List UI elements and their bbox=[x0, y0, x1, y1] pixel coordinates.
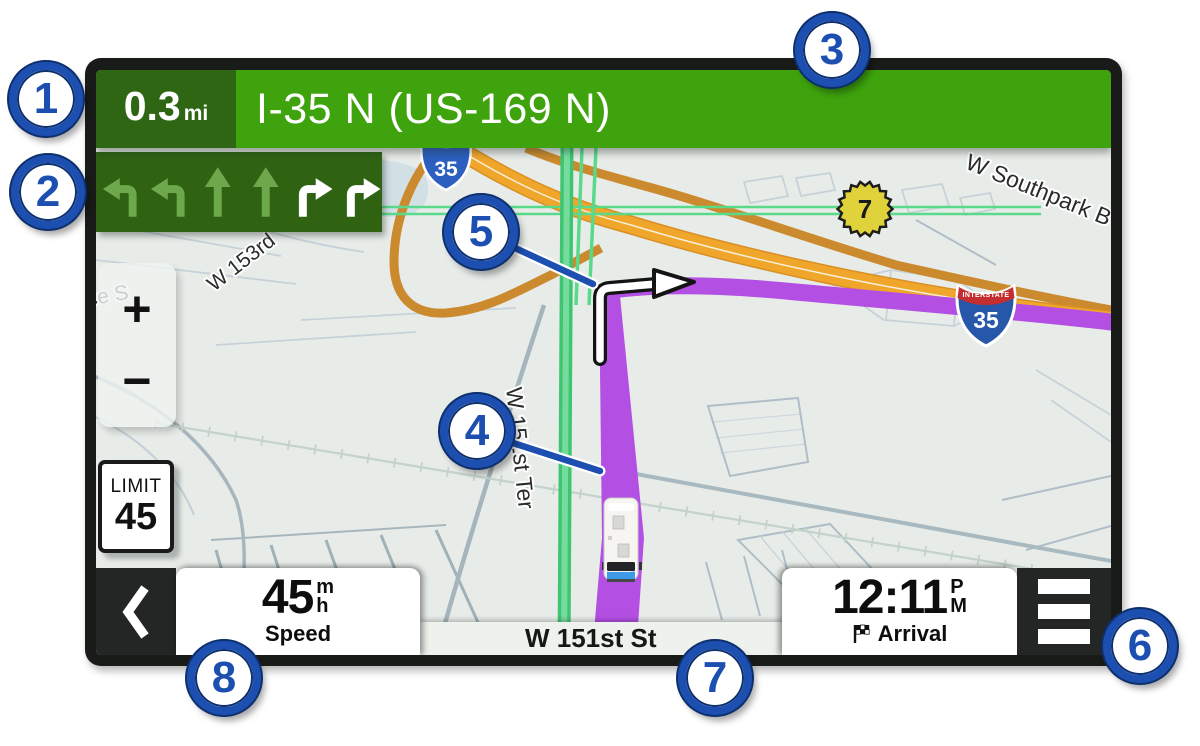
navigation-instruction-bar[interactable]: 0.3 mi I-35 N (US-169 N) bbox=[96, 70, 1111, 148]
speed-limit-value: 45 bbox=[115, 498, 157, 538]
callout-1: 1 bbox=[9, 62, 83, 136]
callout-7: 7 bbox=[678, 641, 752, 715]
speed-limit-label: LIMIT bbox=[110, 476, 161, 498]
lane-arrow-turn-left bbox=[101, 163, 145, 221]
zoom-in-button[interactable]: + bbox=[107, 284, 167, 334]
callout-8: 8 bbox=[187, 641, 261, 715]
back-chevron-icon bbox=[121, 582, 151, 642]
svg-text:INTERSTATE: INTERSTATE bbox=[963, 292, 1010, 299]
interstate-35-shield: INTERSTATE 35 bbox=[957, 286, 1015, 346]
map-block-outlines bbox=[706, 220, 1111, 620]
callout-3: 3 bbox=[795, 13, 869, 87]
documentation-page: 35 7 INTERSTATE 35 W 153rd ce S bbox=[0, 0, 1200, 746]
gps-device-frame: 35 7 INTERSTATE 35 W 153rd ce S bbox=[85, 58, 1122, 666]
arrival-ampm: P M bbox=[950, 578, 967, 615]
lane-arrow-straight bbox=[196, 163, 240, 221]
callout-2: 2 bbox=[11, 155, 85, 229]
lane-arrow-straight bbox=[244, 163, 288, 221]
speed-units: m h bbox=[316, 578, 334, 615]
lane-arrow-turn-right-active bbox=[291, 163, 335, 221]
speed-limit-sign: LIMIT 45 bbox=[98, 460, 174, 553]
street-label-w153rd: W 153rd bbox=[203, 229, 280, 296]
svg-text:35: 35 bbox=[434, 158, 458, 181]
arrival-data-field[interactable]: 12:11 P M bbox=[782, 568, 1017, 655]
zoom-out-button[interactable]: − bbox=[107, 356, 167, 406]
lane-arrow-turn-right-active bbox=[339, 163, 383, 221]
zoom-control-panel: + − bbox=[98, 263, 176, 427]
distance-unit: mi bbox=[184, 102, 209, 126]
arrival-time: 12:11 bbox=[832, 576, 947, 620]
callout-5: 5 bbox=[444, 195, 518, 269]
svg-text:35: 35 bbox=[973, 307, 999, 333]
next-turn-street-name: I-35 N (US-169 N) bbox=[236, 70, 1111, 148]
lane-arrow-turn-left bbox=[149, 163, 193, 221]
hamburger-icon bbox=[1038, 579, 1090, 594]
vehicle-marker bbox=[602, 498, 642, 582]
speed-value: 45 bbox=[262, 576, 313, 620]
distance-to-turn: 0.3 mi bbox=[96, 70, 236, 148]
arrival-readout: 12:11 P M bbox=[832, 576, 967, 620]
current-street-name: W 151st St bbox=[525, 623, 657, 654]
arrival-label-row: Arrival bbox=[852, 621, 948, 647]
main-menu-button[interactable] bbox=[1017, 568, 1111, 655]
svg-text:7: 7 bbox=[858, 194, 872, 224]
speed-label: Speed bbox=[265, 621, 331, 647]
arrival-label: Arrival bbox=[878, 621, 948, 647]
back-button[interactable] bbox=[96, 568, 176, 655]
navigation-screen: 35 7 INTERSTATE 35 W 153rd ce S bbox=[96, 70, 1111, 655]
callout-4: 4 bbox=[440, 394, 514, 468]
lane-guidance-panel bbox=[96, 152, 382, 232]
speed-readout: 45 m h bbox=[262, 576, 334, 620]
checkered-flag-icon bbox=[852, 623, 872, 644]
callout-6: 6 bbox=[1103, 609, 1177, 683]
street-label-southpark: W Southpark B bbox=[962, 149, 1111, 231]
route-7-badge: 7 bbox=[838, 182, 893, 236]
distance-value: 0.3 bbox=[124, 86, 181, 127]
